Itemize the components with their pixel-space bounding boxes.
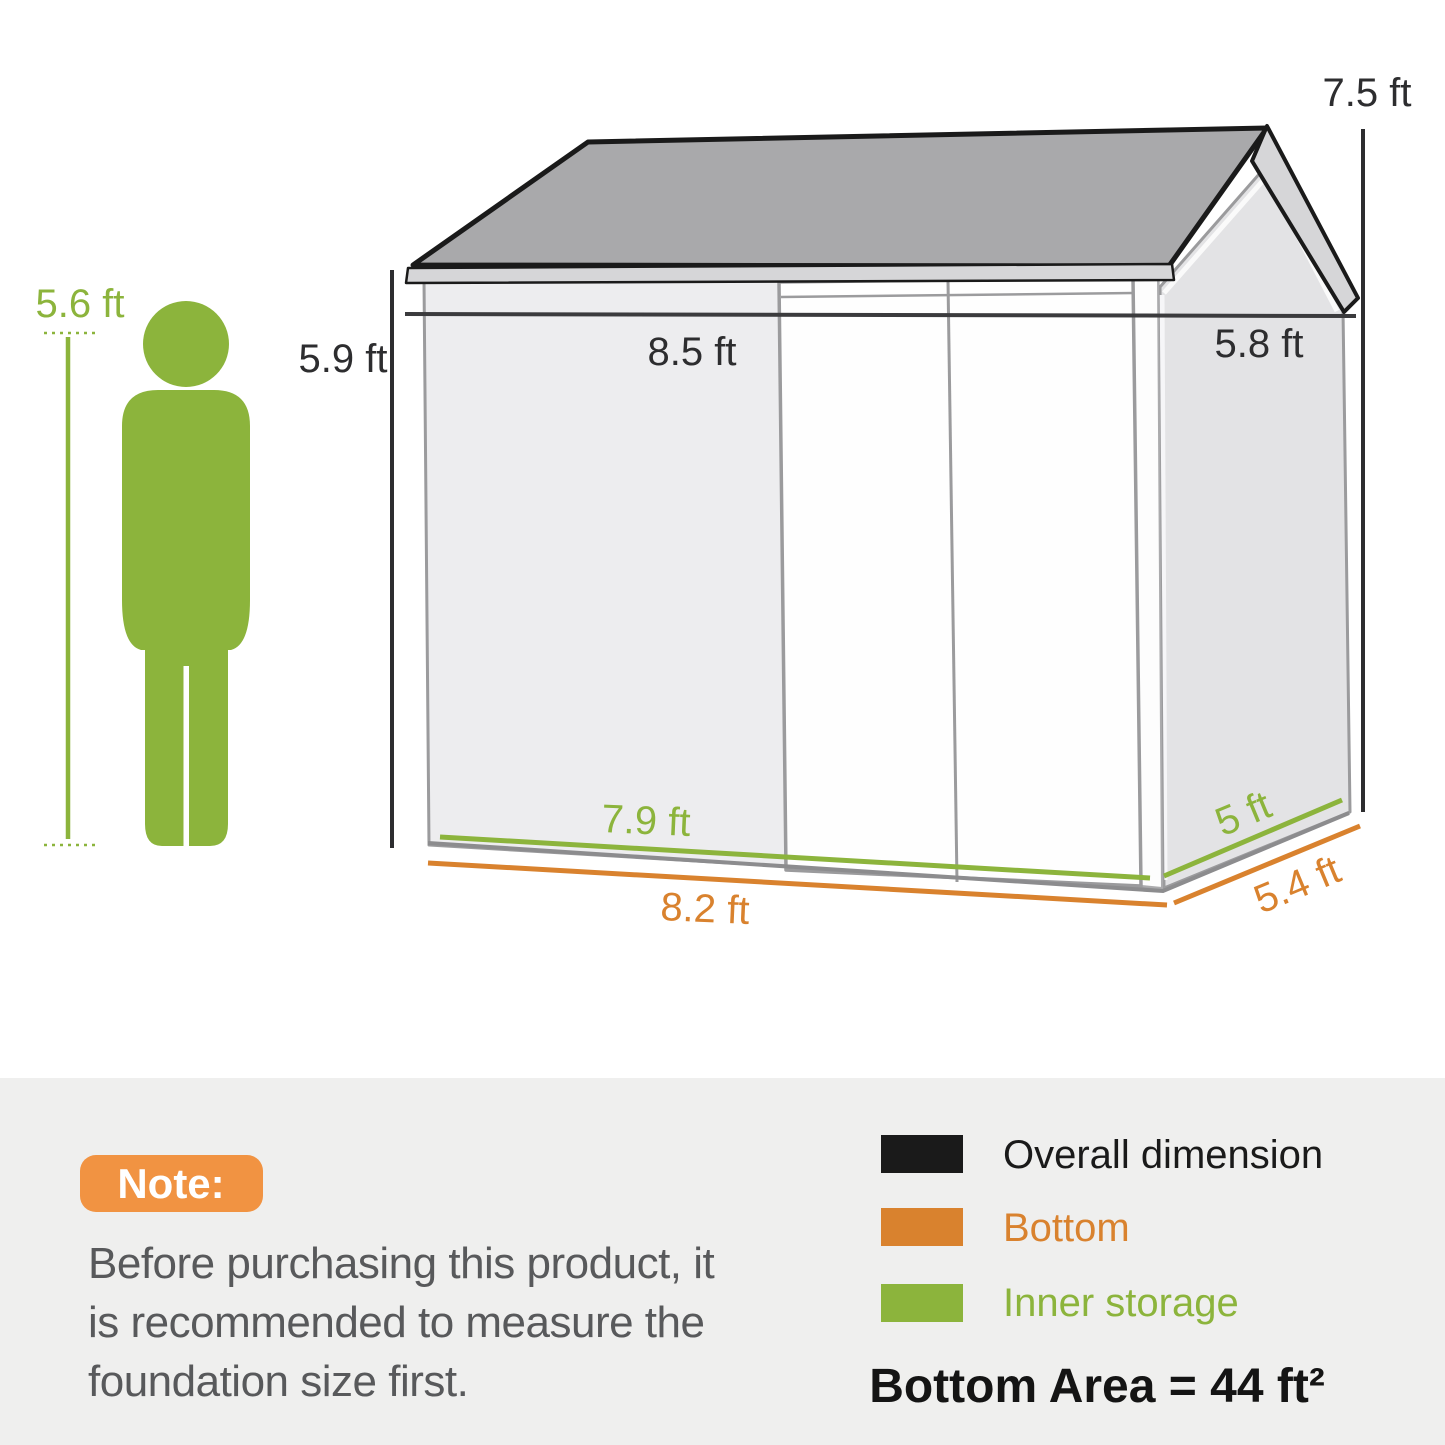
- bottom-width-label: 8.2 ft: [660, 885, 751, 933]
- info-panel: Note: Before purchasing this product, it…: [0, 1078, 1445, 1445]
- person-leg-gap: [184, 666, 190, 846]
- legend-label-inner-storage: Inner storage: [1003, 1281, 1239, 1325]
- bottom-area-label: Bottom Area = 44 ft²: [869, 1360, 1325, 1413]
- legend-label-overall: Overall dimension: [1003, 1133, 1323, 1177]
- person-head: [143, 301, 229, 387]
- overall-width-label: 8.5 ft: [648, 330, 737, 374]
- shed-dimension-diagram: 5.6 ft 5.9 ft 7.5 ft 8.5 ft 5.8 ft: [0, 0, 1445, 1445]
- overall-width-line: [405, 314, 1356, 316]
- diagram-svg: 5.6 ft 5.9 ft 7.5 ft 8.5 ft 5.8 ft: [0, 0, 1445, 1445]
- legend-swatch-overall: [881, 1135, 963, 1173]
- shed-door: [779, 278, 1141, 886]
- note-text-line3: foundation size first.: [88, 1357, 468, 1406]
- legend-swatch-bottom: [881, 1208, 963, 1246]
- overall-height-label: 7.5 ft: [1323, 71, 1412, 115]
- shed-illustration: [406, 126, 1358, 891]
- note-badge-label: Note:: [117, 1160, 224, 1207]
- legend-swatch-inner-storage: [881, 1284, 963, 1322]
- person-height-label: 5.6 ft: [36, 282, 125, 326]
- overall-depth-label: 5.8 ft: [1215, 322, 1304, 366]
- note-text-line2: is recommended to measure the: [88, 1298, 704, 1347]
- inner-width-label: 7.9 ft: [601, 797, 692, 845]
- wall-height-label: 5.9 ft: [299, 337, 388, 381]
- note-text-line1: Before purchasing this product, it: [88, 1239, 715, 1288]
- legend-label-bottom: Bottom: [1003, 1206, 1130, 1250]
- shed-roof-eave-fascia: [406, 264, 1174, 283]
